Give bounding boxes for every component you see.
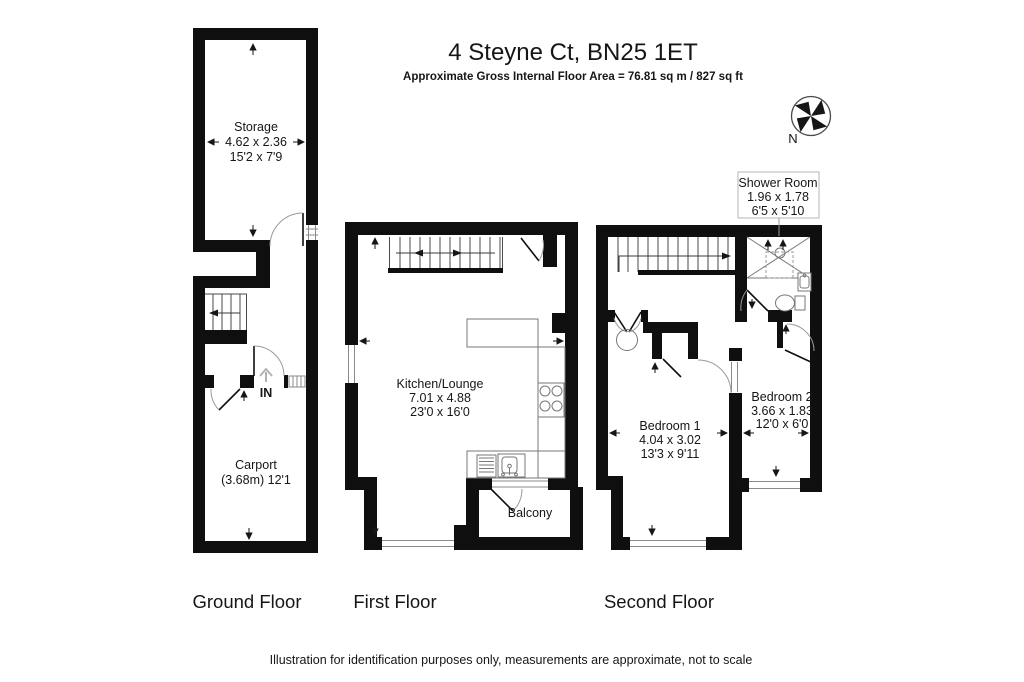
second-floor-stairs [618,237,735,275]
shower-room-imperial-dims: 6'5 x 5'10 [752,204,805,218]
ground-floor-plan: IN Storage 4.62 x 2.36 15'2 x 7'9 Carpor… [193,28,319,612]
stair-direction-arrow [414,250,423,257]
ground-floor-stairs [205,294,247,330]
kitchen-lounge-name: Kitchen/Lounge [397,377,484,391]
entrance-window [288,375,306,388]
compass-north-label: N [788,131,797,146]
second-floor-measure-arrows [610,240,808,535]
storage-door [270,213,303,246]
carport-inner-door [211,389,240,410]
toilet-icon [776,295,806,311]
first-floor-stairs [388,237,503,273]
hob-icon [538,383,564,417]
bedroom2-name: Bedroom 2 [751,390,812,404]
kitchen-lounge-metric-dims: 7.01 x 4.88 [409,391,471,405]
kitchen-lounge-imperial-dims: 23'0 x 16'0 [410,405,470,419]
kitchen-lounge-label: Kitchen/Lounge 7.01 x 4.88 23'0 x 16'0 [397,377,484,419]
cylinder-icon [617,330,638,351]
bedroom1-door [698,360,731,393]
header: 4 Steyne Ct, BN25 1ET Approximate Gross … [403,39,743,83]
storage-label: Storage 4.62 x 2.36 15'2 x 7'9 [225,120,287,164]
lounge-bay-window [382,541,454,547]
carport-label: Carport (3.68m) 12'1 [221,458,291,487]
shower-room-metric-dims: 1.96 x 1.78 [747,190,809,204]
storage-name: Storage [234,120,278,134]
lounge-side-window [345,345,358,383]
shower-tray-icon [766,252,793,278]
bedroom1-metric-dims: 4.04 x 3.02 [639,433,701,447]
bedroom2-metric-dims: 3.66 x 1.83 [751,404,813,418]
dishwasher-icon [477,455,496,477]
bedroom2-imperial-dims: 12'0 x 6'0 [756,417,809,431]
bedroom-partition-panel [732,362,738,392]
first-floor-title: First Floor [353,591,436,612]
kitchen-balcony-window [492,481,548,487]
floorplan-page: 4 Steyne Ct, BN25 1ET Approximate Gross … [0,0,1024,682]
kitchen-fixtures [467,319,565,478]
carport-name: Carport [235,458,277,472]
kitchen-counter-peninsula [467,319,538,347]
stair-direction-arrow [722,253,731,260]
entrance-in-marker: IN [260,369,273,400]
cupboard-doors [614,312,641,351]
second-floor-title: Second Floor [604,591,714,612]
carport-dims: (3.68m) 12'1 [221,473,291,487]
second-floor-plan: Shower Room 1.96 x 1.78 6'5 x 5'10 Bedro… [596,172,822,612]
corridor-window [306,225,318,240]
bedroom2-window [749,482,800,489]
balcony-name: Balcony [508,506,553,520]
bedroom2-label: Bedroom 2 3.66 x 1.83 12'0 x 6'0 [751,390,813,431]
stair-landing-door [521,238,544,261]
storage-metric-dims: 4.62 x 2.36 [225,135,287,149]
page-subtitle: Approximate Gross Internal Floor Area = … [403,71,743,83]
ground-floor-title: Ground Floor [193,591,302,612]
floorplan-svg: 4 Steyne Ct, BN25 1ET Approximate Gross … [0,0,1024,682]
bedroom1-bay-window [630,541,706,547]
storage-imperial-dims: 15'2 x 7'9 [230,150,283,164]
bedroom1-label: Bedroom 1 4.04 x 3.02 13'3 x 9'11 [639,419,701,461]
disclaimer-text: Illustration for identification purposes… [270,653,753,667]
landing-door [663,359,681,377]
first-floor-plan: Kitchen/Lounge 7.01 x 4.88 23'0 x 16'0 B… [345,222,583,612]
page-title: 4 Steyne Ct, BN25 1ET [448,39,698,66]
stair-direction-arrow [453,250,462,257]
entrance-in-label: IN [260,386,273,400]
bedroom1-imperial-dims: 13'3 x 9'11 [641,447,700,461]
bedroom1-name: Bedroom 1 [639,419,700,433]
bedroom2-door [785,324,814,363]
washbasin-icon [798,273,811,291]
shower-room-name: Shower Room [738,176,817,190]
sink-icon [498,454,525,477]
compass-rose: N [786,91,836,146]
